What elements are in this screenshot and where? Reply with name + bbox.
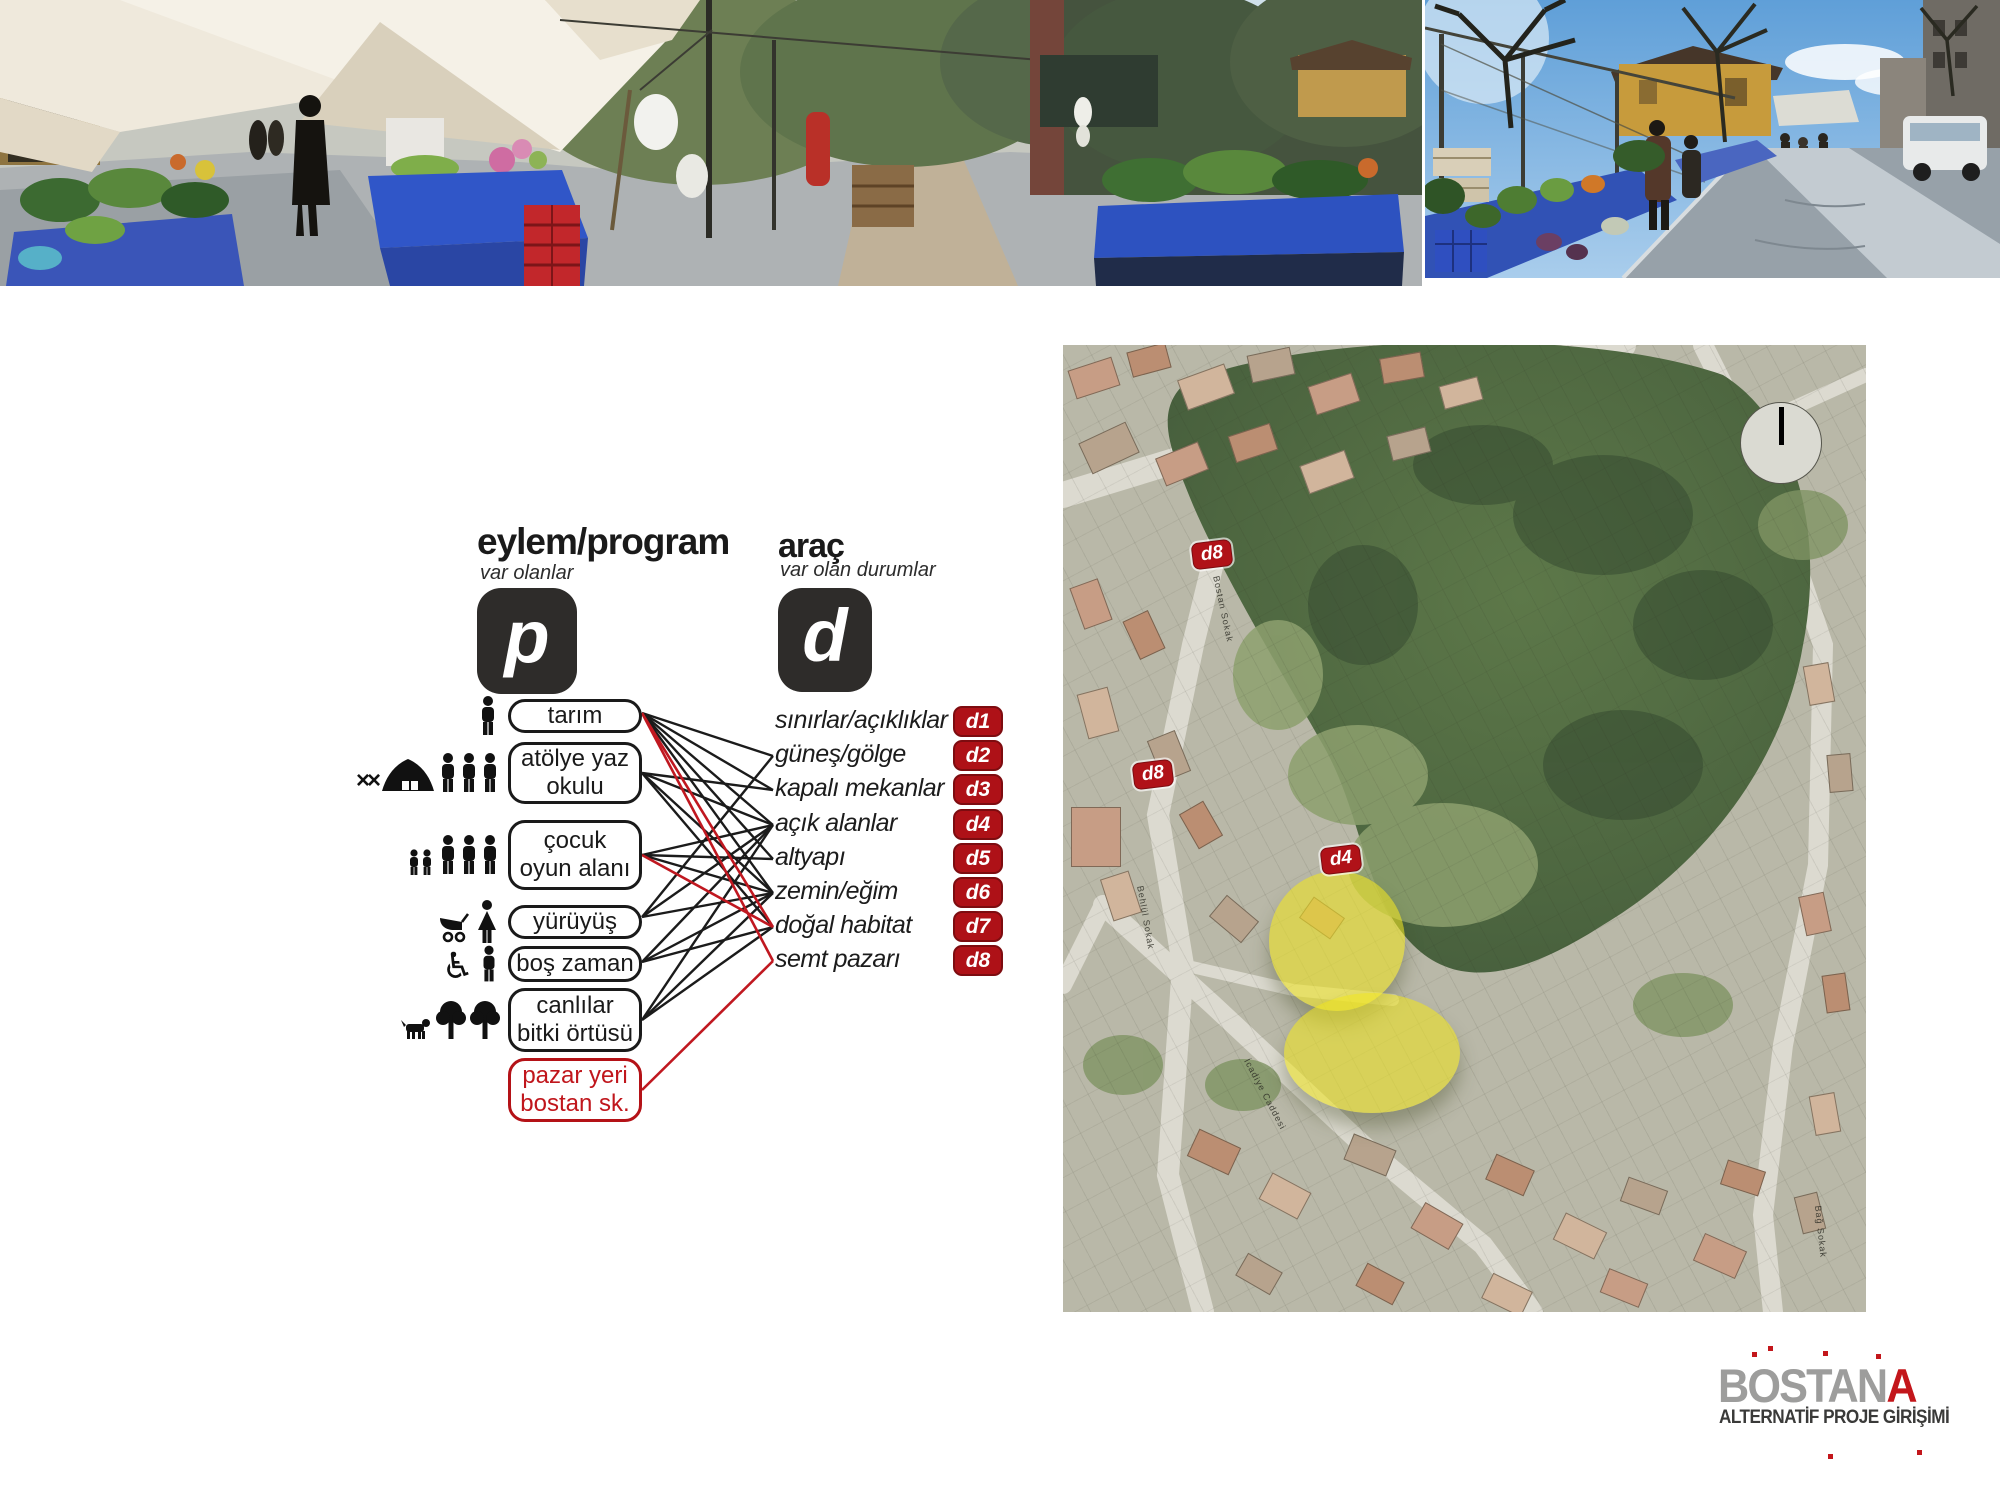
p-column-title: eylem/program bbox=[477, 521, 729, 563]
d-symbol-key: d bbox=[778, 588, 872, 692]
tool-row-d5: altyapı d5 bbox=[775, 842, 1015, 878]
tool-label: sınırlar/açıklıklar bbox=[775, 706, 947, 735]
children-2-icon bbox=[408, 849, 434, 875]
tree-icon bbox=[436, 1000, 466, 1040]
program-box-pazar-yeri: pazar yeri bostan sk. bbox=[508, 1058, 642, 1122]
logo-word-gray: BOSTAN bbox=[1718, 1359, 1886, 1412]
edge-line bbox=[642, 713, 773, 756]
tool-code-badge: d8 bbox=[953, 945, 1003, 976]
edge-line bbox=[642, 961, 773, 1090]
edge-line bbox=[642, 773, 773, 893]
logo-dot bbox=[1828, 1454, 1833, 1459]
market-street-panorama-photo bbox=[0, 0, 1422, 286]
tool-row-d8: semt pazarı d8 bbox=[775, 944, 1015, 980]
d-column-subtitle: var olan durumlar bbox=[780, 559, 936, 582]
program-row-cocuk: çocuk oyun alanı bbox=[330, 820, 642, 890]
person-icon bbox=[476, 696, 500, 736]
street-illustration bbox=[1425, 0, 2000, 278]
program-row-canlilar: canlılar bitki örtüsü bbox=[330, 988, 642, 1052]
street-market-photo bbox=[1425, 0, 2000, 278]
map-marker-d8: d8 bbox=[1191, 539, 1234, 571]
edge-line bbox=[642, 773, 773, 927]
tool-label: zemin/eğim bbox=[775, 877, 898, 906]
edge-line bbox=[642, 756, 773, 917]
logo-dot bbox=[1768, 1346, 1773, 1351]
edge-line bbox=[642, 773, 773, 825]
dog-icon bbox=[400, 1018, 432, 1040]
edge-line bbox=[642, 773, 773, 790]
edge-line bbox=[642, 927, 773, 1020]
tent-icon bbox=[382, 759, 434, 793]
tool-code-badge: d2 bbox=[953, 740, 1003, 771]
edge-line bbox=[642, 927, 773, 962]
edge-line bbox=[642, 855, 773, 859]
stroller-icon bbox=[436, 910, 470, 944]
tool-code-badge: d3 bbox=[953, 774, 1003, 805]
presentation-board: eylem/program var olanlar p araç var ola… bbox=[0, 0, 2000, 1501]
man-icon bbox=[478, 944, 500, 984]
edge-line bbox=[642, 825, 773, 962]
program-box-tarim: tarım bbox=[508, 699, 642, 733]
logo-word-red: A bbox=[1886, 1359, 1915, 1412]
map-marker-d8: d8 bbox=[1132, 759, 1175, 791]
program-box-canlilar: canlılar bitki örtüsü bbox=[508, 988, 642, 1052]
program-box-atolye: atölye yaz okulu bbox=[508, 742, 642, 804]
program-label: atölye yaz okulu bbox=[515, 745, 635, 801]
street-name-label: Bağ Sokak bbox=[1813, 1205, 1828, 1258]
panorama-illustration bbox=[0, 0, 1422, 286]
map-marker-d4: d4 bbox=[1320, 844, 1363, 876]
street-name-label: İcadiye Caddesi bbox=[1242, 1057, 1288, 1131]
tool-label: güneş/gölge bbox=[775, 740, 906, 769]
woman-icon bbox=[474, 900, 500, 944]
site-highlight-ellipse bbox=[1284, 993, 1460, 1113]
tool-row-d6: zemin/eğim d6 bbox=[775, 876, 1015, 912]
program-row-bos-zaman: ♿ boş zaman bbox=[330, 944, 642, 984]
tool-code-badge: d4 bbox=[953, 809, 1003, 840]
tool-label: semt pazarı bbox=[775, 945, 900, 974]
aerial-site-map: Bostan SokakBehlül Sokakİcadiye CaddesiB… bbox=[1063, 345, 1866, 1312]
edge-line bbox=[642, 713, 773, 961]
program-row-yuruyus: yürüyüş bbox=[330, 900, 642, 944]
tool-label: doğal habitat bbox=[775, 911, 912, 940]
program-row-tarim: tarım bbox=[330, 696, 642, 736]
people-3-icon bbox=[438, 835, 500, 875]
north-indicator-icon bbox=[1740, 402, 1822, 484]
map-annotations-layer: Bostan SokakBehlül Sokakİcadiye CaddesiB… bbox=[1063, 345, 1866, 1312]
edge-line bbox=[642, 713, 773, 790]
tool-code-badge: d7 bbox=[953, 911, 1003, 942]
street-name-label: Bostan Sokak bbox=[1211, 575, 1235, 643]
program-row-atolye: ×× atölye yaz okulu bbox=[330, 742, 642, 804]
program-label: pazar yeri bostan sk. bbox=[515, 1062, 635, 1118]
p-symbol-key: p bbox=[477, 588, 577, 694]
logo-dot bbox=[1876, 1354, 1881, 1359]
people-3-icon bbox=[438, 753, 500, 793]
edge-line bbox=[642, 893, 773, 962]
tool-code-badge: d1 bbox=[953, 706, 1003, 737]
tool-code-badge: d5 bbox=[953, 843, 1003, 874]
bostana-logo: BOSTANA ALTERNATİF PROJE GİRİŞİMİ bbox=[1700, 1340, 1960, 1470]
site-highlight-ellipse bbox=[1269, 871, 1405, 1011]
edge-line bbox=[642, 825, 773, 855]
logo-dot bbox=[1917, 1450, 1922, 1455]
street-name-label: Behlül Sokak bbox=[1135, 885, 1156, 950]
tool-label: kapalı mekanlar bbox=[775, 774, 944, 803]
edge-line bbox=[642, 893, 773, 917]
edge-line bbox=[642, 893, 773, 1020]
tree-icon bbox=[470, 1000, 500, 1040]
edge-line bbox=[642, 713, 773, 893]
edge-line bbox=[642, 713, 773, 927]
program-row-pazar-yeri: pazar yeri bostan sk. bbox=[330, 1058, 642, 1122]
program-label: boş zaman bbox=[516, 950, 633, 978]
tool-row-d1: sınırlar/açıklıklar d1 bbox=[775, 705, 1015, 741]
edge-line bbox=[642, 855, 773, 893]
program-box-cocuk: çocuk oyun alanı bbox=[508, 820, 642, 890]
edge-line bbox=[642, 713, 773, 859]
edge-line bbox=[642, 825, 773, 1020]
program-box-yuruyus: yürüyüş bbox=[508, 905, 642, 939]
logo-dot bbox=[1752, 1352, 1757, 1357]
cross-tools-icon: ×× bbox=[356, 769, 378, 793]
program-label: çocuk oyun alanı bbox=[515, 827, 635, 883]
wheelchair-icon: ♿ bbox=[442, 948, 474, 984]
edge-line bbox=[642, 713, 773, 825]
program-label: yürüyüş bbox=[533, 908, 617, 936]
edge-line bbox=[642, 855, 773, 927]
logo-dot bbox=[1823, 1351, 1828, 1356]
tool-row-d3: kapalı mekanlar d3 bbox=[775, 773, 1015, 809]
program-box-bos-zaman: boş zaman bbox=[508, 946, 642, 982]
tool-label: altyapı bbox=[775, 843, 845, 872]
edge-line bbox=[642, 825, 773, 917]
program-label: tarım bbox=[548, 702, 603, 730]
tool-label: açık alanlar bbox=[775, 809, 897, 838]
program-label: canlılar bitki örtüsü bbox=[515, 992, 635, 1048]
p-column-subtitle: var olanlar bbox=[480, 562, 573, 585]
tool-row-d2: güneş/gölge d2 bbox=[775, 739, 1015, 775]
tool-row-d4: açık alanlar d4 bbox=[775, 808, 1015, 844]
logo-subtitle: ALTERNATİF PROJE GİRİŞİMİ bbox=[1719, 1406, 1949, 1429]
tool-code-badge: d6 bbox=[953, 877, 1003, 908]
tool-row-d7: doğal habitat d7 bbox=[775, 910, 1015, 946]
